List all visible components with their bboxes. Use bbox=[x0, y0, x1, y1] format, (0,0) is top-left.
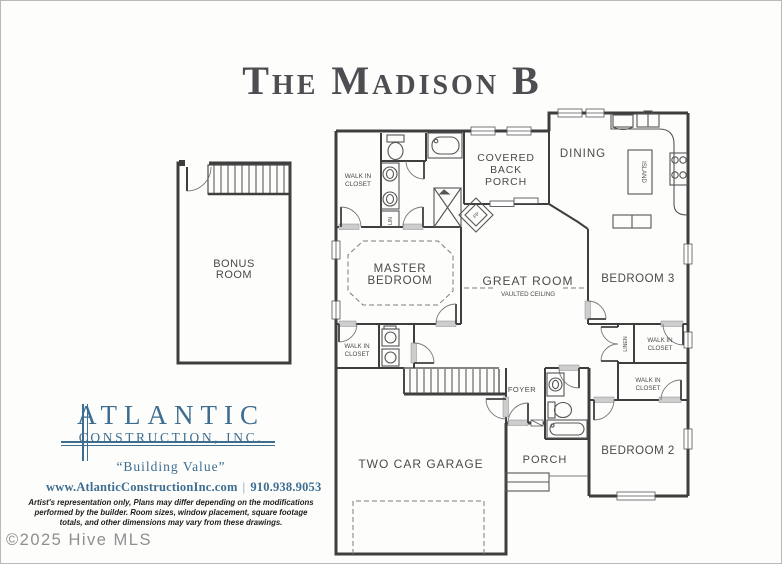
bonus-door bbox=[187, 167, 211, 191]
room-label-porch: PORCH bbox=[523, 454, 568, 466]
bonus-room-structure: BONUS ROOM bbox=[178, 159, 290, 363]
kitchen-island bbox=[628, 150, 652, 194]
builder-website: www.AtlanticConstructionInc.com bbox=[46, 480, 238, 494]
contact-separator: | bbox=[243, 480, 246, 494]
room-label-garage: TWO CAR GARAGE bbox=[358, 457, 483, 471]
room-label-wic-bed2-line2: CLOSET bbox=[636, 385, 661, 392]
builder-logo: ATLANTIC CONSTRUCTION, INC. “Building Va… bbox=[46, 395, 296, 495]
room-label-bedroom3: BEDROOM 3 bbox=[601, 273, 675, 285]
bonus-stairs bbox=[208, 165, 290, 194]
room-label-dining: DINING bbox=[560, 148, 606, 160]
mls-watermark: ©2025 Hive MLS bbox=[6, 531, 152, 550]
washer-dryer bbox=[382, 326, 399, 366]
room-label-wic-bed3-line1: WALK IN bbox=[647, 337, 672, 344]
logo-cross-horizontal-line2 bbox=[61, 445, 275, 447]
vanity-hall bbox=[547, 373, 564, 396]
room-label-fireplace: FP bbox=[472, 211, 481, 220]
bathtub-master bbox=[428, 133, 462, 158]
room-label-covered-porch-line1: COVERED bbox=[477, 152, 535, 164]
disclaimer-text: Artist's representation only, Plans may … bbox=[27, 498, 315, 528]
bathtub-hall bbox=[547, 420, 587, 438]
stove bbox=[670, 153, 687, 185]
room-label-master-line1: MASTER bbox=[374, 263, 427, 275]
room-label-linen: LINEN bbox=[623, 336, 629, 352]
toilet-master bbox=[387, 135, 404, 160]
disclaimer-line2: performed by the builder. Room sizes, wi… bbox=[27, 508, 315, 518]
builder-tagline: “Building Value” bbox=[46, 459, 296, 475]
logo-cross-vertical-line bbox=[82, 404, 84, 461]
porch-steps bbox=[505, 473, 589, 491]
room-label-covered-porch-line3: PORCH bbox=[485, 176, 527, 188]
room-label-wic-master-top-line2: CLOSET bbox=[345, 181, 371, 188]
room-label-lin: LIN bbox=[388, 217, 394, 225]
room-label-vaulted-ceiling: VAULTED CEILING bbox=[501, 291, 555, 298]
plan-sheet: The Madison B BONUS ROOM bbox=[0, 0, 782, 564]
room-label-wic-bed3-line2: CLOSET bbox=[648, 345, 673, 352]
room-label-master-line2: BEDROOM bbox=[367, 275, 432, 287]
logo-cross-horizontal-line bbox=[61, 441, 275, 443]
room-label-wic-bed2-line1: WALK IN bbox=[635, 377, 660, 384]
porch-slider bbox=[490, 198, 538, 207]
disclaimer-line1: Artist's representation only, Plans may … bbox=[27, 498, 315, 508]
room-label-wic-master-bot-line2: CLOSET bbox=[345, 351, 370, 358]
room-label-wic-master-top-line1: WALK IN bbox=[345, 173, 372, 180]
main-stairs bbox=[404, 369, 494, 394]
vanity-master bbox=[381, 163, 399, 209]
room-label-great-room: GREAT ROOM bbox=[483, 274, 574, 288]
shower-master bbox=[434, 188, 461, 227]
kitchen-cabinet bbox=[613, 215, 651, 228]
kitchen-counter bbox=[611, 113, 687, 215]
garage-door-outline bbox=[353, 501, 484, 554]
builder-phone: 910.938.9053 bbox=[250, 480, 321, 494]
disclaimer-line3: totals, and other dimensions may vary fr… bbox=[27, 518, 315, 528]
room-label-bonus-line2: ROOM bbox=[216, 269, 252, 281]
logo-cross-vertical-line2 bbox=[87, 404, 89, 461]
builder-contact: www.AtlanticConstructionInc.com|910.938.… bbox=[46, 480, 296, 495]
room-label-covered-porch-line2: BACK bbox=[490, 164, 522, 176]
builder-name: ATLANTIC bbox=[46, 402, 296, 429]
foyer-sidelight bbox=[531, 420, 543, 426]
room-label-wic-master-bot-line1: WALK IN bbox=[344, 343, 369, 350]
room-label-bedroom2: BEDROOM 2 bbox=[601, 445, 675, 457]
room-label-foyer: FOYER bbox=[508, 385, 536, 394]
room-label-island: ISLAND bbox=[640, 161, 646, 183]
toilet-hall bbox=[548, 402, 572, 418]
